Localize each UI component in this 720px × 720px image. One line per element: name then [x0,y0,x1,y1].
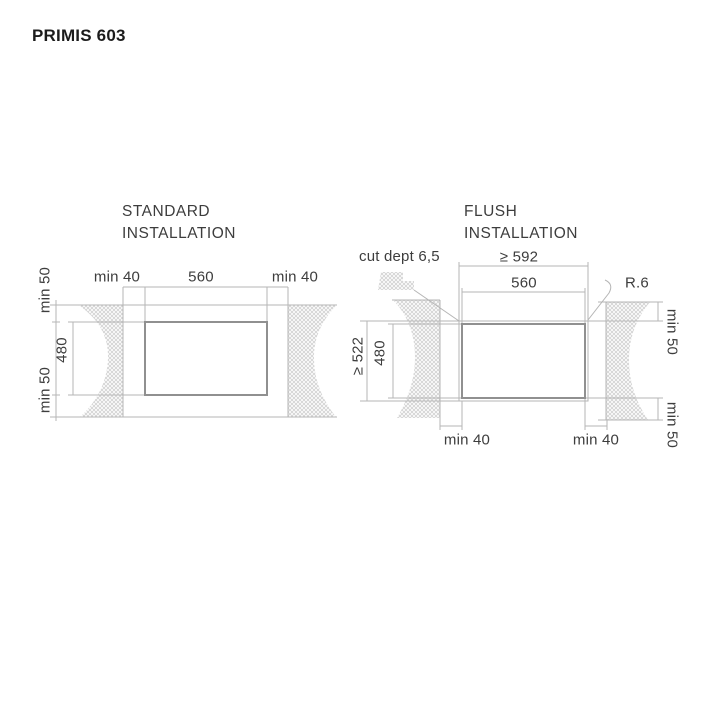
standard-dim-left-bottom-clearance: min 50 [37,367,54,413]
flush-recess-rect [459,321,588,401]
flush-dim-cut-depth: cut dept 6,5 [359,248,440,265]
standard-dim-top-right-clearance: min 40 [272,269,318,286]
flush-cutout-rect [462,324,585,398]
flush-dim-outer-height: ≥ 522 [350,337,367,375]
flush-dim-inner-height: 480 [372,340,389,366]
wall-hatch-right [288,305,337,417]
product-name: PRIMIS 603 [32,26,126,46]
flush-dim-right-bottom-clearance: min 50 [664,402,681,448]
flush-dim-outer-width: ≥ 592 [500,249,538,266]
standard-dim-left-top-clearance: min 50 [37,267,54,313]
flush-dim-right-top-clearance: min 50 [664,309,681,355]
flush-dim-bottom-right-clearance: min 40 [573,432,619,449]
standard-dim-left-height: 480 [54,337,71,363]
flush-dim-bottom-left-clearance: min 40 [444,432,490,449]
standard-title-line1: STANDARD [122,203,210,221]
standard-title-line2: INSTALLATION [122,225,236,243]
wall-hatch-right [606,302,650,420]
installation-spec-sheet: PRIMIS 603 STANDARD INSTALLATION min 40 … [0,0,720,720]
standard-dim-top-width: 560 [188,269,214,286]
wall-hatch-left [393,300,440,418]
flush-title-line1: FLUSH [464,203,517,221]
flush-dim-inner-width: 560 [511,275,537,292]
standard-cutout-rect [145,322,267,395]
flush-title-line2: INSTALLATION [464,225,578,243]
standard-diagram [50,287,337,421]
flush-dim-corner-radius: R.6 [625,275,649,292]
cut-depth-profile [378,272,414,290]
standard-dim-top-left-clearance: min 40 [94,269,140,286]
